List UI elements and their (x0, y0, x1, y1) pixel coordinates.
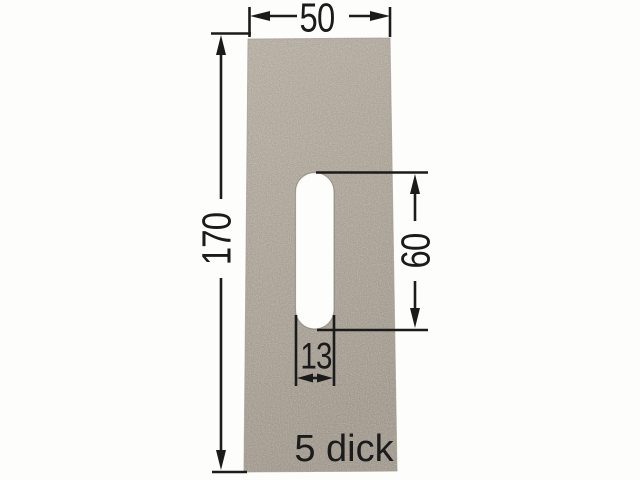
slot-width-label: 13 (300, 338, 331, 375)
thickness-label: 5 dick (294, 430, 393, 468)
plate-width-label: 50 (300, 0, 335, 39)
arrow-up-icon (216, 35, 226, 55)
arrow-left-icon (250, 11, 270, 21)
arrow-down-icon (216, 450, 226, 470)
arrow-right-icon (370, 11, 390, 21)
arrow-down-icon (410, 308, 420, 328)
slot-height-label: 60 (396, 234, 437, 269)
drawing-svg (0, 0, 640, 480)
plate-height-label: 170 (197, 213, 238, 265)
slot-hole (296, 173, 335, 330)
arrow-up-icon (410, 174, 420, 194)
technical-drawing-canvas: 50 170 60 13 5 dick (0, 0, 640, 480)
